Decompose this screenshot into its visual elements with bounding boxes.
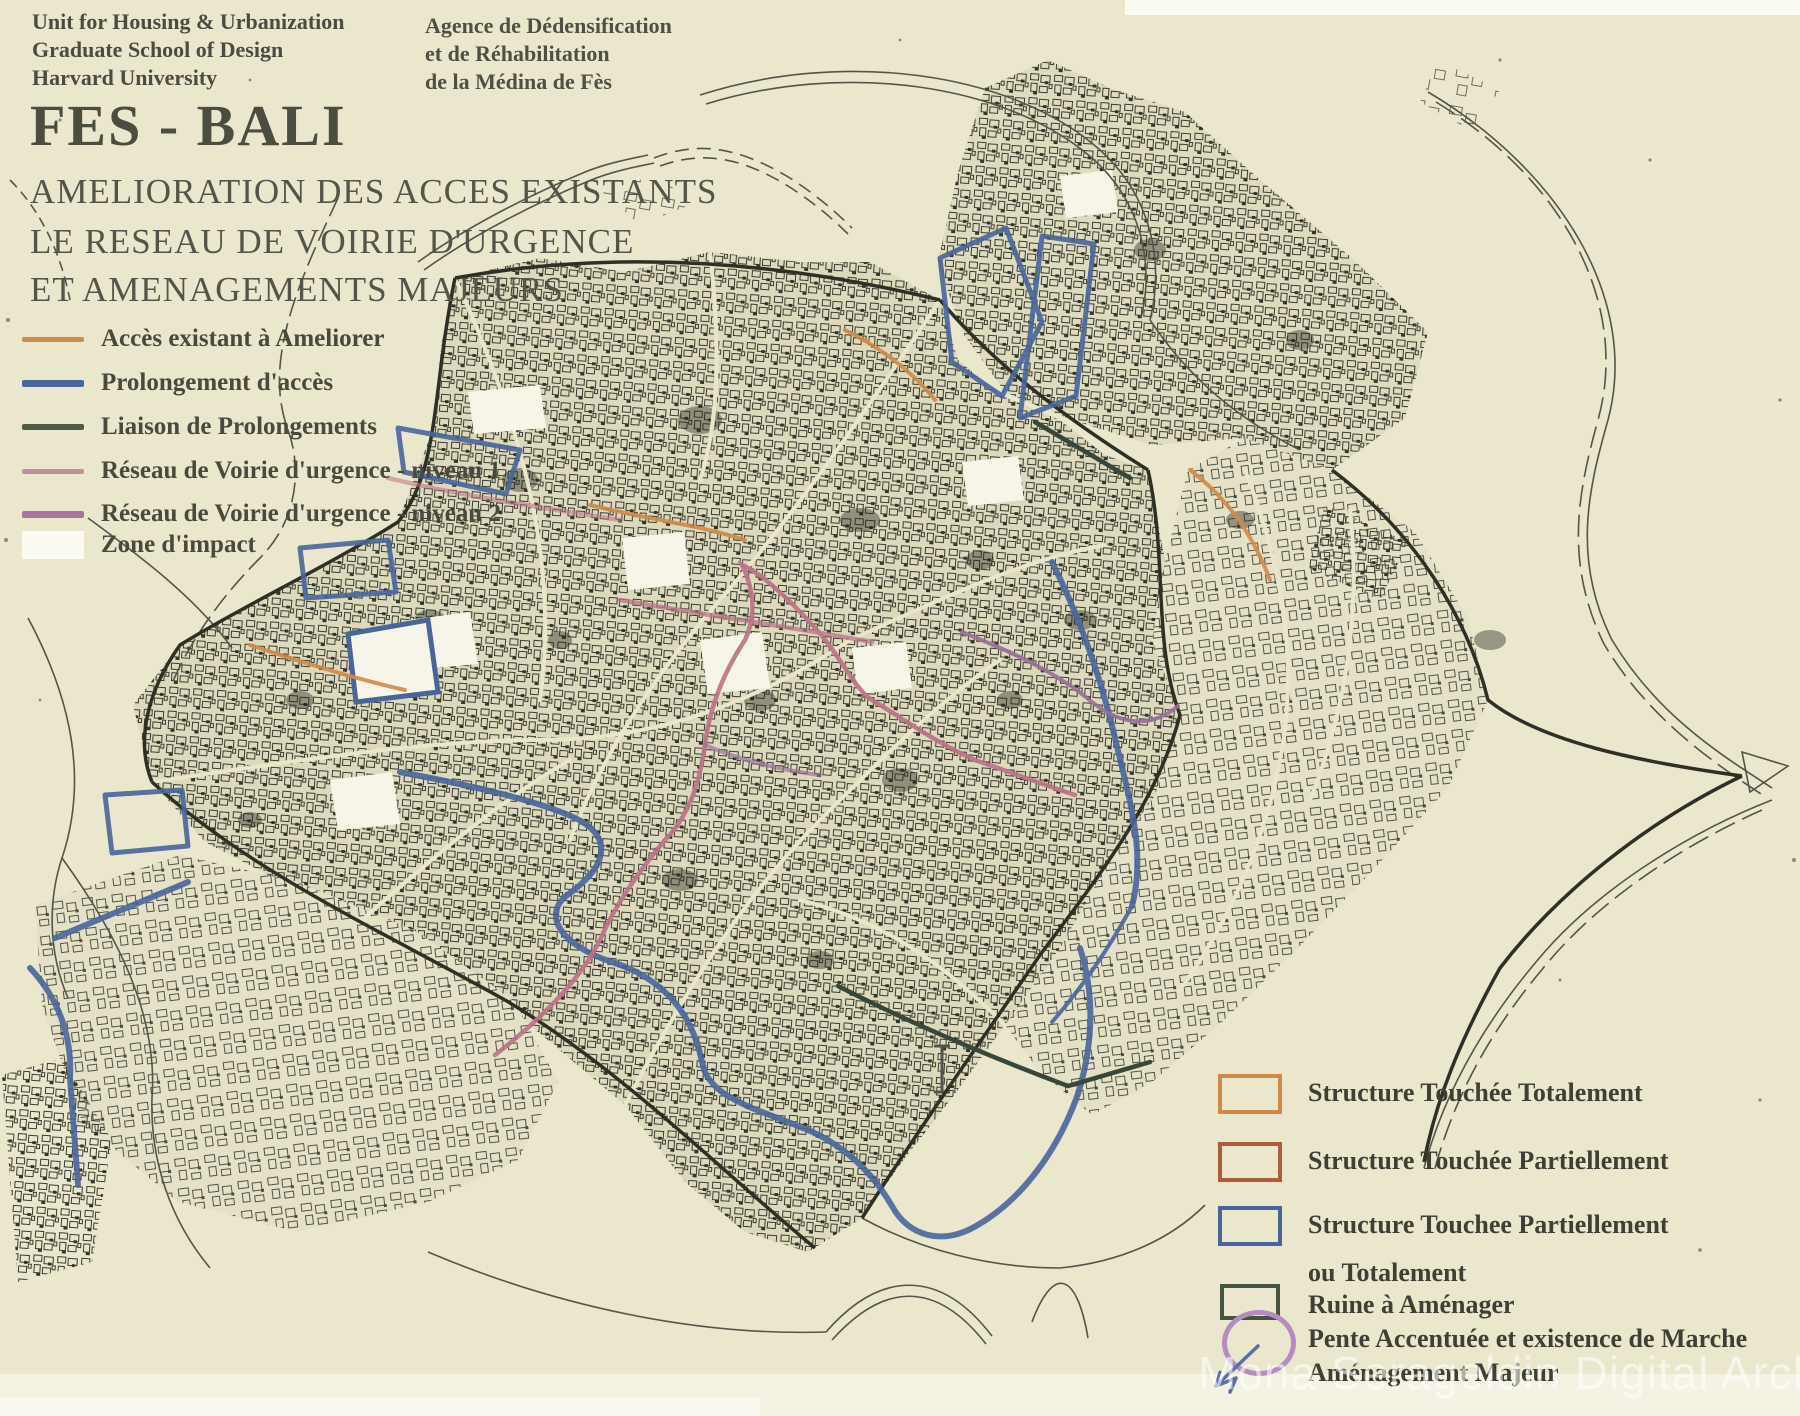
purple-line-swatch [22,511,84,518]
film-edge-bottom-light [0,1398,760,1416]
agency-block: Agence de Dédensification et de Réhabili… [425,12,672,96]
archive-watermark: Mona Serageldin Digital Archive [1198,1346,1800,1400]
pink-line-swatch [22,469,84,474]
blue-rect-swatch [1218,1206,1282,1246]
green-line-swatch [22,424,84,430]
org-block: Unit for Housing & Urbanization Graduate… [32,8,345,92]
legend-label: Structure Touchee Partiellement [1308,1210,1669,1240]
blue-line-swatch [22,380,84,387]
org-line-1: Unit for Housing & Urbanization [32,8,345,36]
film-edge-top [1125,0,1800,15]
legend-label: Prolongement d'accès [101,369,333,397]
legend-label: Réseau de Voirie d'urgence - niveau 2 [101,500,501,528]
orange-rect-swatch [1218,1074,1282,1114]
legend-access-routes: Accès existant à Ameliorer Prolongement … [22,322,662,582]
legend-label: Accès existant à Ameliorer [101,325,384,353]
legend-item-prolongement: Prolongement d'accès [22,366,333,400]
scanned-map-slide: Unit for Housing & Urbanization Graduate… [0,0,1800,1416]
agency-line-1: Agence de Dédensification [425,12,672,40]
red-rect-swatch [1218,1142,1282,1182]
org-line-3: Harvard University [32,64,345,92]
legend-label: Zone d'impact [101,531,256,559]
legend-item-acces-existant: Accès existant à Ameliorer [22,322,384,356]
map-subtitle-3: ET AMENAGEMENTS MAJEURS [30,270,564,310]
impact-zone-blue-outline [348,620,438,702]
legend-label: Liaison de Prolongements [101,413,377,441]
legend-item-voirie-niveau-1: Réseau de Voirie d'urgence - niveau 1 [22,454,501,488]
legend-label: Ruine à Aménager [1308,1290,1515,1320]
map-title: FES - BALI [30,92,347,159]
legend-label: Structure Touchée Partiellement [1308,1146,1669,1176]
legend-label: Structure Touchée Totalement [1308,1078,1643,1108]
agency-line-3: de la Médina de Fès [425,68,672,96]
orange-line-swatch [22,337,84,342]
org-line-2: Graduate School of Design [32,36,345,64]
agency-line-2: et de Réhabilitation [425,40,672,68]
white-area-swatch [22,531,84,559]
legend-item-liaison: Liaison de Prolongements [22,410,377,444]
map-subtitle-2: LE RESEAU DE VOIRIE D'URGENCE [30,222,634,262]
legend-item-voirie-niveau-2: Réseau de Voirie d'urgence - niveau 2 [22,497,501,531]
legend-item-zone-impact: Zone d'impact [22,528,256,562]
legend-label: Réseau de Voirie d'urgence - niveau 1 [101,457,501,485]
map-subtitle-1: AMELIORATION DES ACCES EXISTANTS [30,172,717,212]
legend-label-line2: ou Totalement [1308,1258,1466,1288]
